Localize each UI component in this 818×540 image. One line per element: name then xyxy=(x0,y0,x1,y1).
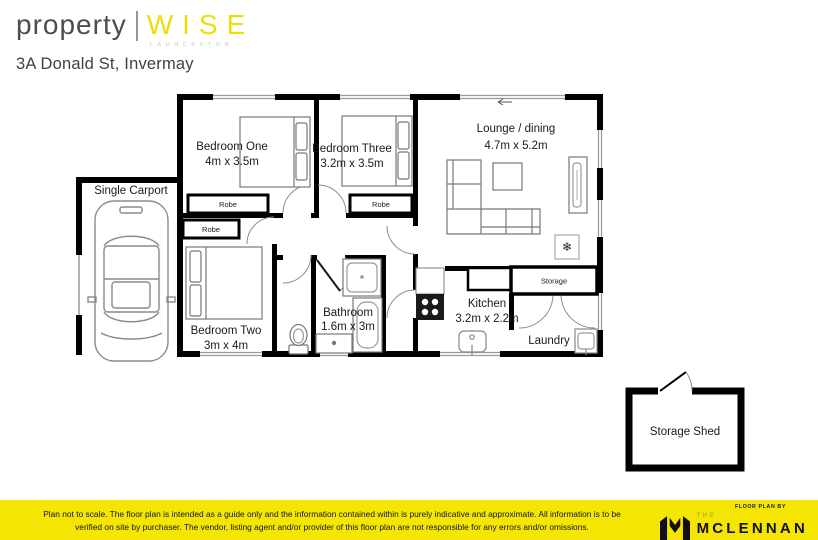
door-arc xyxy=(519,294,553,328)
svg-text:❄: ❄ xyxy=(562,240,572,254)
bed-icon xyxy=(186,247,262,319)
storage-label: Storage xyxy=(541,277,567,286)
coffee-table-icon xyxy=(493,163,522,190)
lounge-dining-dims: 4.7m x 5.2m xyxy=(484,140,547,152)
disclaimer-line-2: verified on site by purchaser. The vendo… xyxy=(75,522,589,532)
door-arc xyxy=(247,217,274,244)
kitchen-counter xyxy=(416,268,444,294)
window xyxy=(597,130,603,168)
carport-label: Single Carport xyxy=(94,185,168,197)
window xyxy=(460,94,565,100)
laundry-tub-icon xyxy=(575,329,597,355)
heater-icon: ❄ xyxy=(555,235,579,259)
door-arc xyxy=(318,185,346,213)
kitchen-bench xyxy=(468,268,515,290)
shower-icon xyxy=(343,259,381,296)
window xyxy=(340,94,410,100)
property-address: 3A Donald St, Invermay xyxy=(16,55,254,74)
bedroom-two-dims: 3m x 4m xyxy=(204,340,248,352)
footer-band: Plan not to scale. The floor plan is int… xyxy=(0,500,818,540)
storage-shed: Storage Shed xyxy=(629,372,741,468)
bathroom-dims: 1.6m x 3m xyxy=(321,321,375,333)
shower-door-leaf xyxy=(317,260,340,291)
robe-label: Robe xyxy=(372,200,390,209)
brand-name-left: property xyxy=(16,8,127,42)
tv-unit-icon xyxy=(569,157,587,213)
brand-divider xyxy=(136,11,138,41)
robe-cabinet: Robe xyxy=(188,195,268,213)
bedroom-three-label: Bedroom Three xyxy=(312,143,392,155)
kitchen-dims: 3.2m x 2.2m xyxy=(455,313,518,325)
agency-name: MCLENNAN xyxy=(697,520,808,537)
mclennan-logo: THE MCLENNAN xyxy=(660,513,808,540)
robe-label: Robe xyxy=(219,200,237,209)
bathroom-label: Bathroom xyxy=(323,307,373,319)
window xyxy=(213,94,275,100)
bedroom-two-label: Bedroom Two xyxy=(191,325,262,337)
agency-prefix: THE xyxy=(697,513,808,520)
bedroom-one-label: Bedroom One xyxy=(196,141,268,153)
floorplan-page: Single Carport xyxy=(0,0,818,540)
window xyxy=(597,200,603,237)
brand-tagline: LAUNCESTON xyxy=(147,42,255,48)
bedroom-three-dims: 3.2m x 3.5m xyxy=(320,158,383,170)
kitchen-label: Kitchen xyxy=(468,298,506,310)
door-arc xyxy=(387,290,415,318)
laundry-label: Laundry xyxy=(528,335,570,347)
door-arc xyxy=(283,185,311,213)
robe-cabinet: Robe xyxy=(350,195,412,213)
vanity-icon xyxy=(316,334,352,353)
floor-plan-by-label: FLOOR PLAN BY xyxy=(735,504,786,510)
robe-label: Robe xyxy=(202,225,220,234)
header: property WISE LAUNCESTON 3A Donald St, I… xyxy=(16,8,254,74)
disclaimer-line-1: Plan not to scale. The floor plan is int… xyxy=(43,509,621,519)
toilet-icon xyxy=(289,325,308,355)
floorplan-drawing: Single Carport xyxy=(0,0,818,540)
brand-name-right: WISE xyxy=(147,8,255,42)
brand-logo: property WISE LAUNCESTON xyxy=(16,8,254,48)
window xyxy=(597,293,603,330)
sink-icon xyxy=(459,331,486,355)
bedroom-one-dims: 4m x 3.5m xyxy=(205,156,259,168)
door-arc xyxy=(561,294,595,328)
storage-cupboard: Storage xyxy=(511,267,597,294)
door-arc xyxy=(283,255,311,283)
storage-shed-label: Storage Shed xyxy=(650,426,720,438)
carport: Single Carport xyxy=(76,177,180,361)
car-icon xyxy=(88,201,175,361)
robe-cabinet: Robe xyxy=(183,220,239,238)
stove-icon xyxy=(416,294,444,320)
lounge-dining-label: Lounge / dining xyxy=(477,123,556,135)
m-mark-icon xyxy=(660,516,690,540)
door-arc xyxy=(387,226,415,254)
disclaimer-text: Plan not to scale. The floor plan is int… xyxy=(12,508,652,535)
